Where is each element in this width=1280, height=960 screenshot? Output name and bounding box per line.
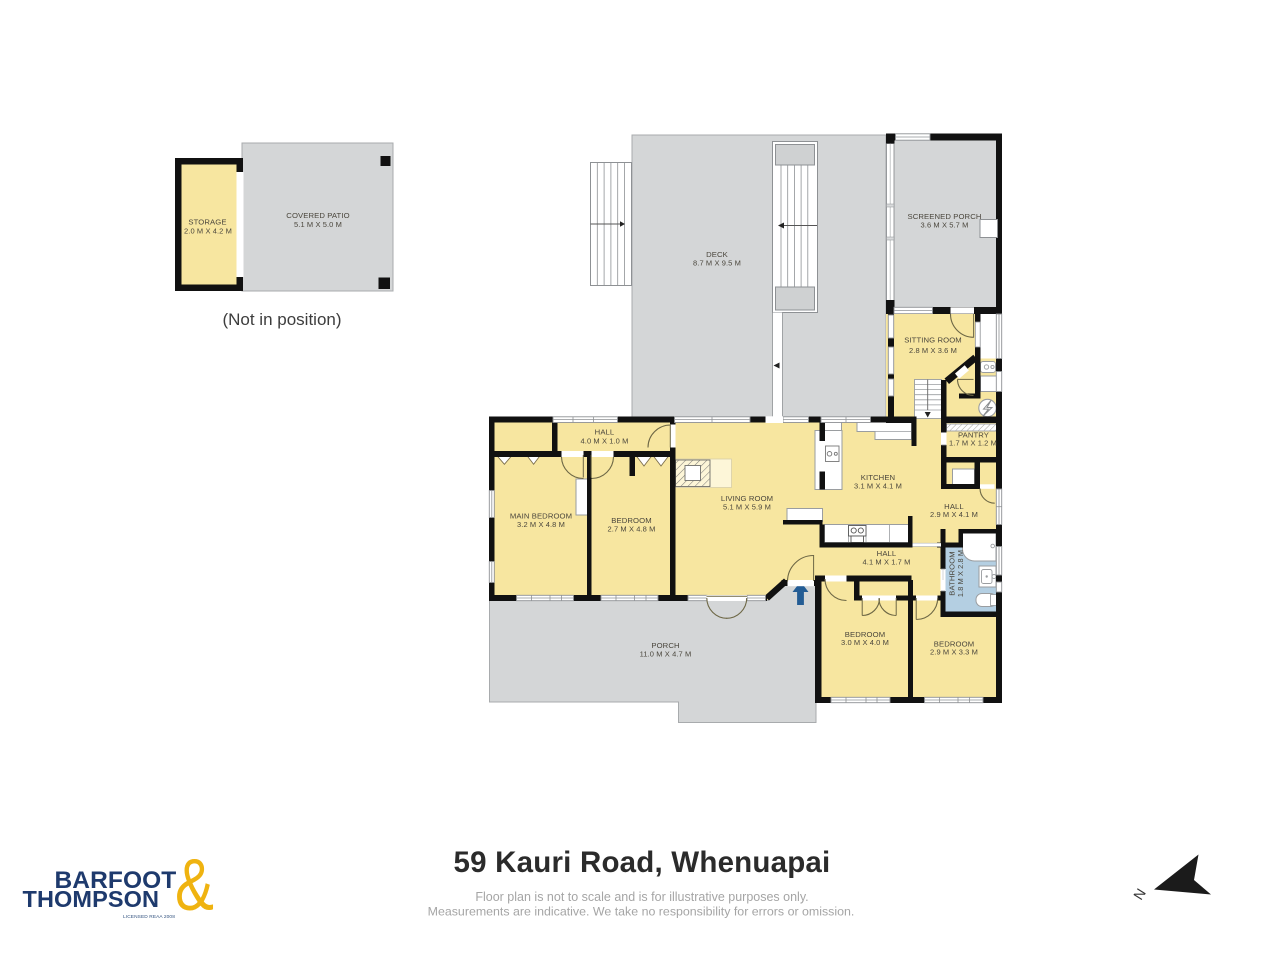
svg-text:Measurements are indicative. W: Measurements are indicative. We take no … <box>428 905 855 919</box>
svg-text:1.7 M X 1.2 M: 1.7 M X 1.2 M <box>949 439 997 448</box>
svg-text:5.1 M X 5.9 M: 5.1 M X 5.9 M <box>723 503 771 512</box>
svg-text:2.0 M X 4.2 M: 2.0 M X 4.2 M <box>184 227 232 236</box>
svg-text:2.8 M X 3.6 M: 2.8 M X 3.6 M <box>909 346 957 355</box>
svg-text:Floor plan is not to scale and: Floor plan is not to scale and is for il… <box>475 890 808 904</box>
svg-text:11.0 M X 4.7 M: 11.0 M X 4.7 M <box>640 650 692 659</box>
svg-text:2.9 M X 4.1 M: 2.9 M X 4.1 M <box>930 510 978 519</box>
svg-text:8.7 M X 9.5 M: 8.7 M X 9.5 M <box>693 259 741 268</box>
svg-text:4.0 M X 1.0 M: 4.0 M X 1.0 M <box>581 437 629 446</box>
svg-text:1.8 M X 2.8 M: 1.8 M X 2.8 M <box>956 550 965 597</box>
svg-text:LICENSED REAA 2008: LICENSED REAA 2008 <box>123 914 175 920</box>
svg-text:3.1 M X 4.1 M: 3.1 M X 4.1 M <box>854 482 902 491</box>
svg-text:2.9 M X 3.3 M: 2.9 M X 3.3 M <box>930 648 978 657</box>
svg-text:HALL: HALL <box>595 428 615 437</box>
svg-text:3.6 M X 5.7 M: 3.6 M X 5.7 M <box>921 221 969 230</box>
svg-text:&: & <box>175 845 214 927</box>
svg-text:5.1 M X 5.0 M: 5.1 M X 5.0 M <box>294 220 342 229</box>
svg-text:THOMPSON: THOMPSON <box>23 886 160 912</box>
svg-text:4.1 M X 1.7 M: 4.1 M X 1.7 M <box>863 558 911 567</box>
svg-text:SITTING ROOM: SITTING ROOM <box>904 336 962 345</box>
svg-text:2.7 M X 4.8 M: 2.7 M X 4.8 M <box>608 525 656 534</box>
svg-text:59 Kauri Road, Whenuapai: 59 Kauri Road, Whenuapai <box>454 846 831 879</box>
svg-text:(Not in position): (Not in position) <box>222 310 341 329</box>
svg-text:COVERED PATIO: COVERED PATIO <box>286 211 349 220</box>
svg-text:3.2 M X 4.8 M: 3.2 M X 4.8 M <box>517 520 565 529</box>
svg-text:3.0 M X 4.0 M: 3.0 M X 4.0 M <box>841 638 889 647</box>
svg-text:STORAGE: STORAGE <box>188 218 226 227</box>
